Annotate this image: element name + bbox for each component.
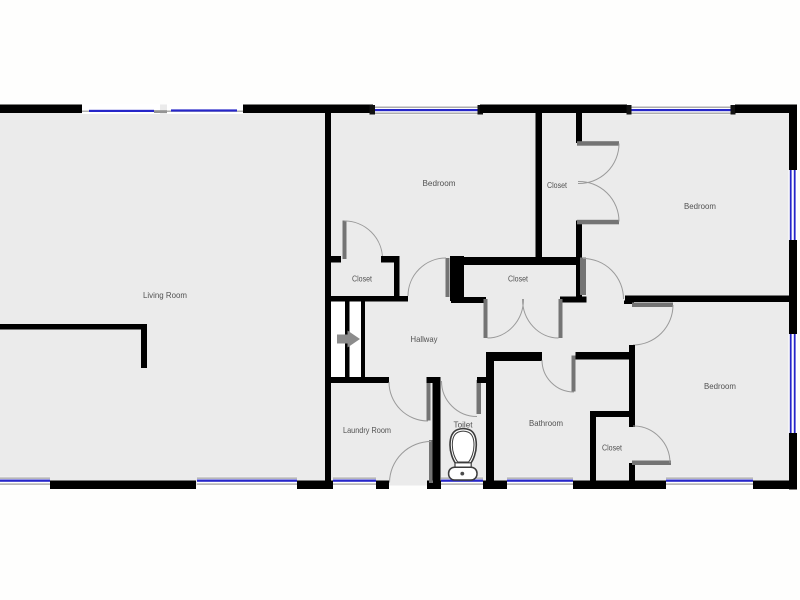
svg-text:Closet: Closet — [602, 443, 623, 453]
svg-text:Bedroom: Bedroom — [684, 201, 716, 211]
svg-text:Closet: Closet — [352, 274, 373, 284]
svg-text:Closet: Closet — [547, 180, 568, 190]
svg-text:Bedroom: Bedroom — [423, 178, 456, 188]
svg-text:Bedroom: Bedroom — [704, 381, 736, 391]
svg-text:Closet: Closet — [508, 274, 529, 284]
svg-text:Living Room: Living Room — [143, 290, 187, 300]
svg-text:Laundry Room: Laundry Room — [343, 425, 391, 435]
svg-text:Bathroom: Bathroom — [529, 418, 563, 428]
svg-text:Hallway: Hallway — [411, 334, 439, 344]
